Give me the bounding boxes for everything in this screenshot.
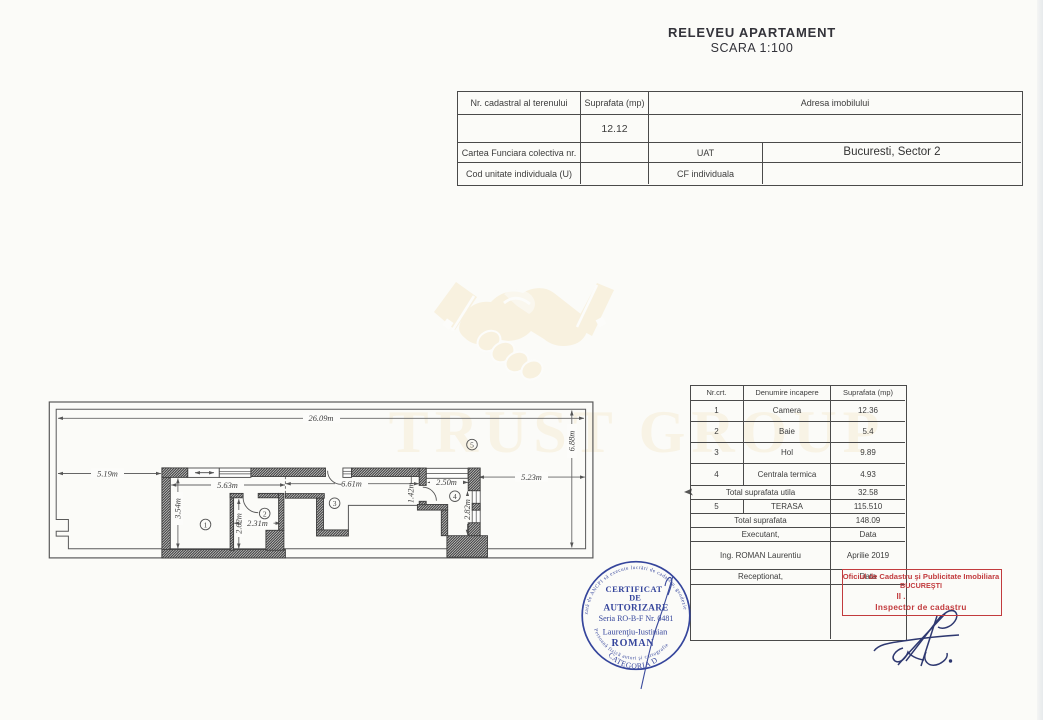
svg-text:Laurenţiu-Iustinian: Laurenţiu-Iustinian xyxy=(603,628,668,637)
svg-text:AUTORIZARE: AUTORIZARE xyxy=(603,603,668,613)
svg-text:DE: DE xyxy=(629,594,641,603)
svg-text:Seria RO-B-F Nr. 0481: Seria RO-B-F Nr. 0481 xyxy=(599,614,674,623)
svg-text:ROMAN: ROMAN xyxy=(612,638,655,649)
svg-text:CERTIFICAT: CERTIFICAT xyxy=(605,584,662,594)
